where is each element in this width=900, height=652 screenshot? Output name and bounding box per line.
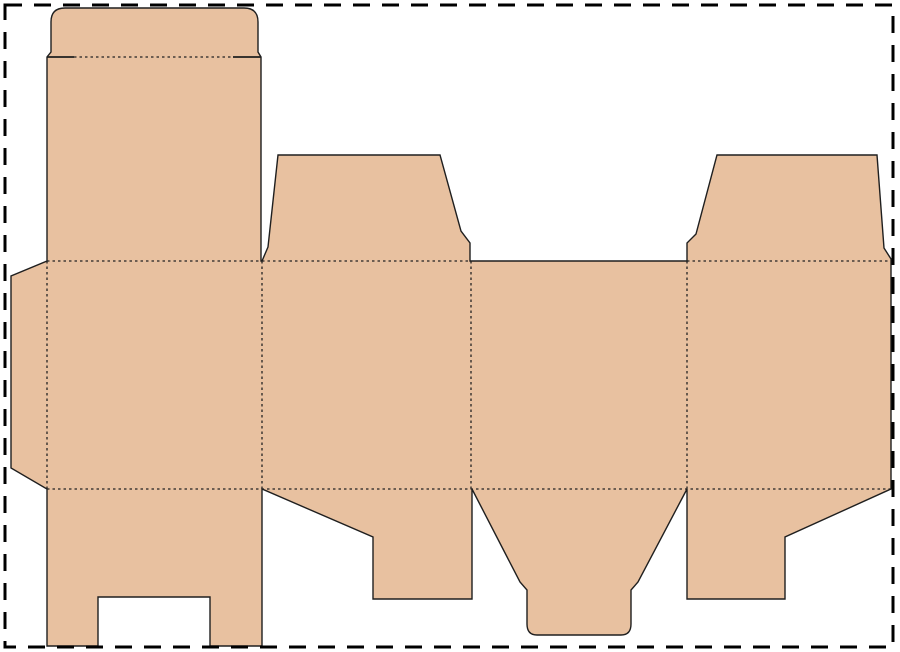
packaging-dieline-page [0,0,900,652]
dieline-canvas [0,0,900,652]
box-blank-outline [11,8,891,646]
